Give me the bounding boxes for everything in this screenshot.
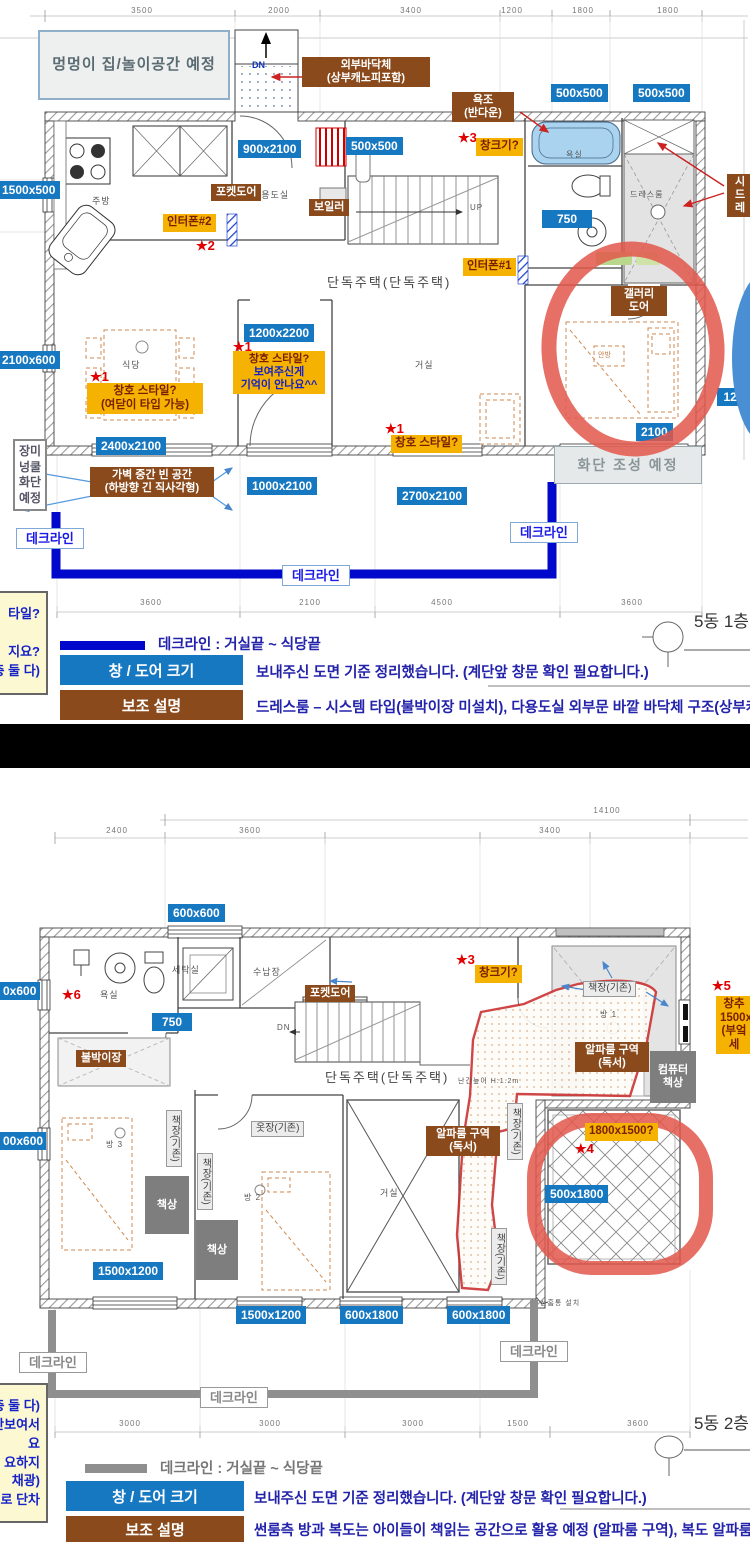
room-text: 세탁실 xyxy=(172,965,200,976)
dim-chip: 1500x1200 xyxy=(93,1262,163,1280)
window-size-question: 창크기? xyxy=(476,138,523,156)
room-text: 수납장 xyxy=(253,967,281,978)
dim-chip: 750 xyxy=(152,1013,192,1031)
room-text: 식당 xyxy=(122,360,141,371)
window-style-question: 창호 스타일?보여주신게 기억이 안나요^^ xyxy=(233,351,325,394)
dim-text: 3000 xyxy=(108,1419,152,1428)
deck-line-legend: 데크라인 : 거실끝 ~ 식당끝 xyxy=(160,1457,323,1478)
window-door-size-text: 보내주신 도면 기준 정리했습니다. (계단앞 창문 확인 필요합니다.) xyxy=(256,661,649,682)
dim-text: 1800 xyxy=(646,6,690,15)
dn-text: DN xyxy=(252,60,265,71)
flowerbed-note: 화단 조성 예정 xyxy=(554,446,702,484)
dim-chip: 1000x2100 xyxy=(247,477,317,495)
dim-text: 3400 xyxy=(389,6,433,15)
room-text: 드레스룸 xyxy=(630,190,663,199)
window-door-size-text: 보내주신 도면 기준 정리했습니다. (계단앞 창문 확인 필요합니다.) xyxy=(254,1487,647,1508)
aux-note-text: 드레스룸 – 시스템 타입(불박이장 미설치), 다용도실 외부문 바깥 바닥체… xyxy=(256,696,750,717)
dim-text: 14100 xyxy=(585,806,629,815)
dim-text: 3600 xyxy=(610,598,654,607)
dim-chip: 1500x1200 xyxy=(236,1306,306,1324)
floor-tag: 5동 2층 xyxy=(694,1414,749,1434)
dim-chip: 500x500 xyxy=(551,84,608,102)
boiler-note: 보일러 xyxy=(309,199,349,216)
pocket-door-note: 포켓도어 xyxy=(305,985,355,1002)
rose-bed-note: 장미 넝쿨 화단 예정 xyxy=(13,439,47,511)
dim-text: 3600 xyxy=(129,598,173,607)
deck-line-label: 데크라인 xyxy=(500,1341,568,1362)
dim-text: 1800 xyxy=(561,6,605,15)
computer-desk-box: 컴퓨터 책상 xyxy=(650,1051,696,1103)
dim-chip: 600x600 xyxy=(168,904,225,922)
section-divider xyxy=(0,724,750,768)
deck-line-legend: 데크라인 : 거실끝 ~ 식당끝 xyxy=(158,633,321,654)
plan-title: 단독주택(단독주택) xyxy=(327,275,451,290)
dim-text: 1200 xyxy=(490,6,534,15)
dog-house-note: 멍멍이 집/놀이공간 예정 xyxy=(38,30,230,100)
dim-text: 2000 xyxy=(257,6,301,15)
window-door-size-title: 창 / 도어 크기 xyxy=(60,655,243,685)
deck-line-label: 데크라인 xyxy=(19,1352,87,1373)
dim-chip: 900x2100 xyxy=(238,140,301,158)
room-text: 욕실 xyxy=(566,150,583,159)
floorplan-screenshot: 3500200034001200180018003600210045003600… xyxy=(0,0,750,1542)
bookshelf-label: 책장(기존) xyxy=(583,981,636,997)
exterior-floor-note: 외부바닥체 (상부캐노피포함) xyxy=(302,57,430,87)
bathtub-note: 욕조 (반다운) xyxy=(452,92,514,122)
aux-note-title: 보조 설명 xyxy=(60,690,243,720)
dim-chip: 120 xyxy=(717,388,750,406)
alpha-room-note: 알파룸 구역 (독서) xyxy=(575,1042,649,1072)
room-text: 안방 xyxy=(598,352,611,360)
dim-chip: 500x500 xyxy=(633,84,690,102)
dim-chip: 0x600 xyxy=(0,982,40,1000)
room-text: 욕실 xyxy=(100,990,119,1001)
downspout-text: 선홈통 설치 xyxy=(540,1300,580,1308)
aux-note-text: 썬룸측 방과 복도는 아이들이 책읽는 공간으로 활용 예정 (알파룸 구역),… xyxy=(254,1519,750,1540)
dim-text: 3600 xyxy=(616,1419,660,1428)
alpha-room-note: 알파룸 구역 (독서) xyxy=(426,1126,500,1156)
dim-chip: 2700x2100 xyxy=(397,487,467,505)
window-size-question: 창크기? xyxy=(475,965,522,983)
deck-line-label: 데크라인 xyxy=(282,565,350,586)
desk-box: 책상 xyxy=(196,1220,238,1280)
window-style-question: 창호 스타일? xyxy=(391,435,462,453)
star-mark: ★6 xyxy=(62,987,81,1002)
room-text: 거실 xyxy=(415,360,434,371)
deck-line-label: 데크라인 xyxy=(16,528,84,549)
window-add-note: 창추 1500x (부엌세 xyxy=(716,996,750,1054)
room-text: 방 3 xyxy=(106,1140,123,1149)
dim-chip: 750 xyxy=(542,210,592,228)
pocket-door-note: 포켓도어 xyxy=(211,184,261,201)
gallery-door-note: 갤러리 도어 xyxy=(611,286,667,316)
window-size-question: 1800x1500? xyxy=(585,1123,658,1141)
interphone2-note: 인터폰#2 xyxy=(163,214,216,232)
deck-line-swatch-blue xyxy=(60,641,145,650)
bookshelf-label: 책장(기존) xyxy=(507,1103,523,1160)
side-note: 타일? 지요? 층 둘 다) xyxy=(0,591,48,695)
star-mark: ★3 xyxy=(458,130,477,145)
room-text: 방 1 xyxy=(600,1010,617,1019)
room-text: 주방 xyxy=(92,196,111,207)
star-mark: ★2 xyxy=(196,238,215,253)
room-text: 거실 xyxy=(380,1188,399,1199)
star-mark: ★5 xyxy=(712,978,731,993)
aux-note-title: 보조 설명 xyxy=(66,1516,244,1542)
dn-text: DN xyxy=(277,1023,291,1032)
dim-text: 3000 xyxy=(248,1419,292,1428)
dim-chip: 600x1800 xyxy=(340,1306,403,1324)
up-text: UP xyxy=(470,203,483,212)
dim-chip: 1200x2200 xyxy=(244,324,314,342)
bookshelf-label: 책장(기존) xyxy=(166,1110,182,1167)
builtin-closet-note: 불박이장 xyxy=(76,1050,126,1067)
window-style-question: 창호 스타일? (여닫이 타입 가능) xyxy=(87,383,203,414)
desk-box: 책상 xyxy=(145,1176,189,1234)
dim-text: 3600 xyxy=(228,826,272,835)
dim-chip: 600x1800 xyxy=(447,1306,510,1324)
dim-chip: 2400x2100 xyxy=(96,437,166,455)
system-dress-note: 시 드레 xyxy=(727,174,750,217)
deck-line-swatch-gray xyxy=(85,1464,147,1473)
floor-tag: 5동 1층 xyxy=(694,612,749,632)
window-door-size-title: 창 / 도어 크기 xyxy=(66,1481,244,1511)
dim-chip: 500x1800 xyxy=(545,1185,608,1203)
star-mark: ★4 xyxy=(575,1141,594,1156)
dim-text: 3400 xyxy=(528,826,572,835)
dim-chip: 2100x600 xyxy=(0,351,60,369)
bookshelf-label: 책장(기존) xyxy=(491,1228,507,1285)
interphone1-note: 인터폰#1 xyxy=(463,258,516,276)
dim-text: 3500 xyxy=(120,6,164,15)
railing-text: 난간높이 H:1.2m xyxy=(458,1078,519,1086)
star-mark: ★3 xyxy=(456,952,475,967)
dim-chip: 1500x500 xyxy=(0,181,60,199)
partition-gap-note: 가벽 중간 빈 공간 (하방향 긴 직사각형) xyxy=(90,467,214,497)
room-text: 방 2 xyxy=(244,1193,261,1202)
dim-text: 3000 xyxy=(391,1419,435,1428)
dim-text: 4500 xyxy=(420,598,464,607)
dim-chip: 500x500 xyxy=(346,137,403,155)
wardrobe-label: 옷장(기존) xyxy=(251,1121,304,1137)
deck-line-label: 데크라인 xyxy=(200,1387,268,1408)
deck-line-label: 데크라인 xyxy=(510,522,578,543)
dim-chip: 2100 xyxy=(636,423,673,441)
plan-title: 단독주택(단독주택) xyxy=(325,1070,449,1085)
bookshelf-label: 책장(기존) xyxy=(197,1153,213,1210)
dim-text: 2400 xyxy=(95,826,139,835)
dim-chip: 00x600 xyxy=(0,1132,46,1150)
dim-text: 1500 xyxy=(496,1419,540,1428)
dim-text: 2100 xyxy=(288,598,332,607)
plan1-drawing xyxy=(0,0,750,724)
side-note: 층 둘 다) 안보여서 요 요하지 채광) 로 단차 xyxy=(0,1383,48,1523)
